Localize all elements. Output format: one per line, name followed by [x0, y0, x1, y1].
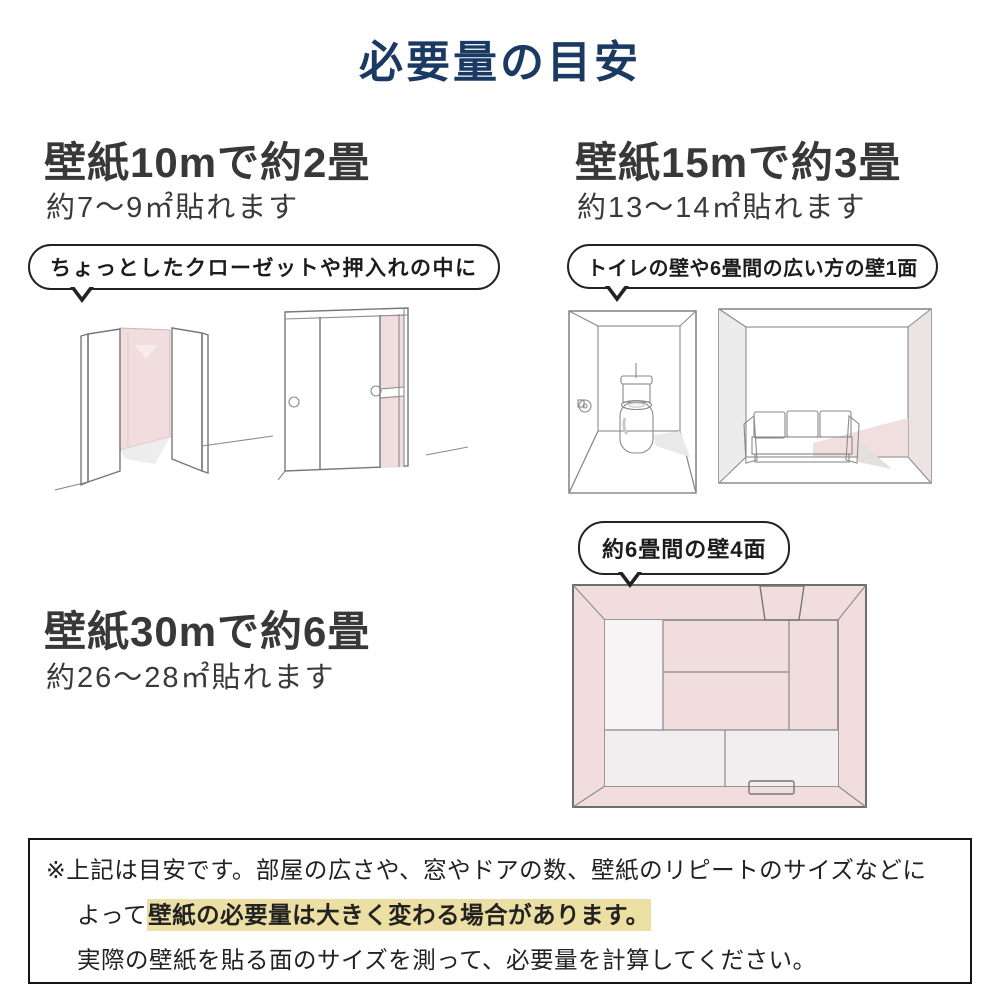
room-top-view-illustration	[572, 584, 867, 808]
room-left-wall	[719, 309, 746, 483]
note-highlight: 壁紙の必要量は大きく変わる場合があります。	[147, 899, 651, 931]
open-closet-illustration	[55, 303, 273, 515]
subheading-10m: 約7〜9㎡貼れます	[46, 184, 299, 226]
door-handle-icon	[289, 397, 299, 407]
speech-bubble-closet-label: ちょっとしたクローゼットや押入れの中に	[50, 257, 478, 280]
note-line-2: よって壁紙の必要量は大きく変わる場合があります。	[46, 893, 958, 938]
sliding-closet-illustration	[278, 297, 468, 497]
toilet-paper-icon	[579, 400, 591, 412]
heading-30m: 壁紙30mで約6畳	[44, 598, 370, 659]
bubble-tail-icon	[73, 285, 91, 297]
speech-bubble-closet: ちょっとしたクローゼットや押入れの中に	[28, 244, 500, 290]
toilet-room-illustration	[568, 310, 698, 496]
page-title: 必要量の目安	[0, 26, 1000, 90]
sofa-room-illustration	[718, 308, 934, 486]
subheading-15m: 約13〜14㎡貼れます	[577, 184, 867, 226]
subheading-30m: 約26〜28㎡貼れます	[46, 654, 336, 696]
infographic-canvas: 必要量の目安 壁紙10mで約2畳 約7〜9㎡貼れます ちょっとしたクローゼットや…	[0, 0, 1000, 1000]
speech-bubble-room-label: 約6畳間の壁4面	[602, 537, 766, 562]
note-line-2-prefix: よって	[77, 902, 147, 928]
speech-bubble-toilet: トイレの壁や6畳間の広い方の壁1面	[567, 244, 938, 289]
room-floor	[719, 457, 931, 483]
note-line-3: 実際の壁紙を貼る面のサイズを測って、必要量を計算してください。	[46, 938, 958, 983]
closet-left-door	[88, 329, 120, 482]
speech-bubble-room: 約6畳間の壁4面	[578, 521, 790, 575]
heading-15m: 壁紙15mで約3畳	[575, 129, 901, 190]
note-box: ※上記は目安です。部屋の広さや、窓やドアの数、壁紙のリピートのサイズなどに よっ…	[28, 838, 972, 984]
bubble-tail-icon	[621, 570, 639, 582]
closet-right-door	[172, 328, 202, 471]
bubble-tail-icon	[608, 284, 626, 296]
toilet-tank	[623, 384, 650, 402]
heading-10m: 壁紙10mで約2畳	[44, 129, 370, 190]
speech-bubble-toilet-label: トイレの壁や6畳間の広い方の壁1面	[587, 258, 918, 280]
note-line-1: ※上記は目安です。部屋の広さや、窓やドアの数、壁紙のリピートのサイズなどに	[46, 848, 958, 893]
room-right-wall	[908, 309, 931, 483]
